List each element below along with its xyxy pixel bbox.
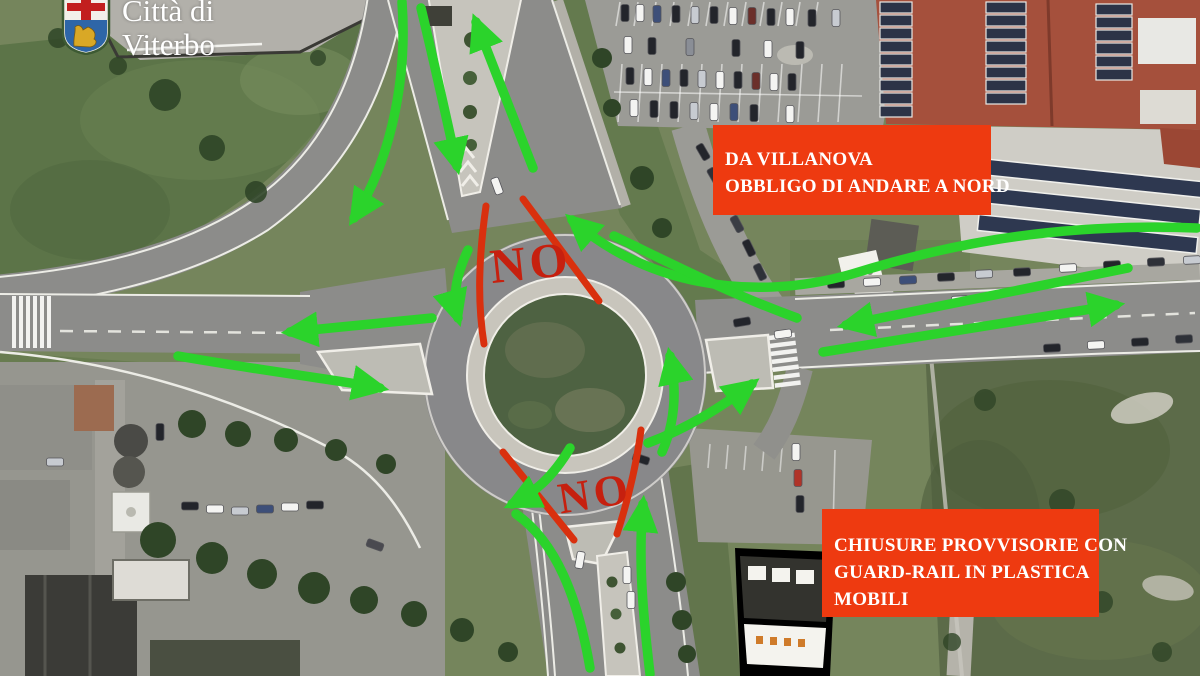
no-label-top: NO (488, 234, 574, 291)
callout-villanova-line2: OBBLIGO DI ANDARE A NORD (725, 173, 979, 200)
no-label-bottom: NO (555, 466, 635, 521)
municipality-logo: Città di Viterbo (60, 0, 215, 62)
logo-line2: Viterbo (122, 28, 215, 62)
callout-chiusure: CHIUSURE PROVVISORIE CON GUARD-RAIL IN P… (822, 509, 1099, 617)
gas-station (735, 548, 836, 676)
logo-line1: Città di (122, 0, 215, 28)
callout-chiusure-line3: MOBILI (834, 586, 1087, 613)
callout-chiusure-line2: GUARD-RAIL IN PLASTICA (834, 559, 1087, 586)
callout-villanova-line1: DA VILLANOVA (725, 146, 979, 173)
logo-text: Città di Viterbo (122, 0, 215, 62)
traffic-plan-map: NO NO DA VILLANOVA OBBLIGO DI ANDARE A N… (0, 0, 1200, 676)
viterbo-coat-of-arms-icon (60, 0, 112, 55)
callout-chiusure-line1: CHIUSURE PROVVISORIE CON (834, 532, 1087, 559)
callout-villanova: DA VILLANOVA OBBLIGO DI ANDARE A NORD (713, 125, 991, 215)
